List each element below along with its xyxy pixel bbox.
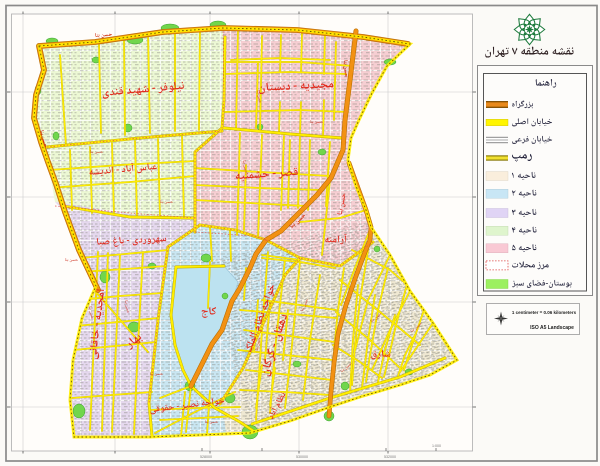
svg-text:530000: 530000 xyxy=(296,455,308,459)
svg-text:ISO A5 Landscape: ISO A5 Landscape xyxy=(530,325,574,331)
svg-text:532000: 532000 xyxy=(384,455,396,459)
svg-text:528000: 528000 xyxy=(200,455,212,459)
svg-text:1:000: 1:000 xyxy=(432,444,441,448)
svg-text:1 centimeter = 0.06 kilometers: 1 centimeter = 0.06 kilometers xyxy=(512,310,577,315)
